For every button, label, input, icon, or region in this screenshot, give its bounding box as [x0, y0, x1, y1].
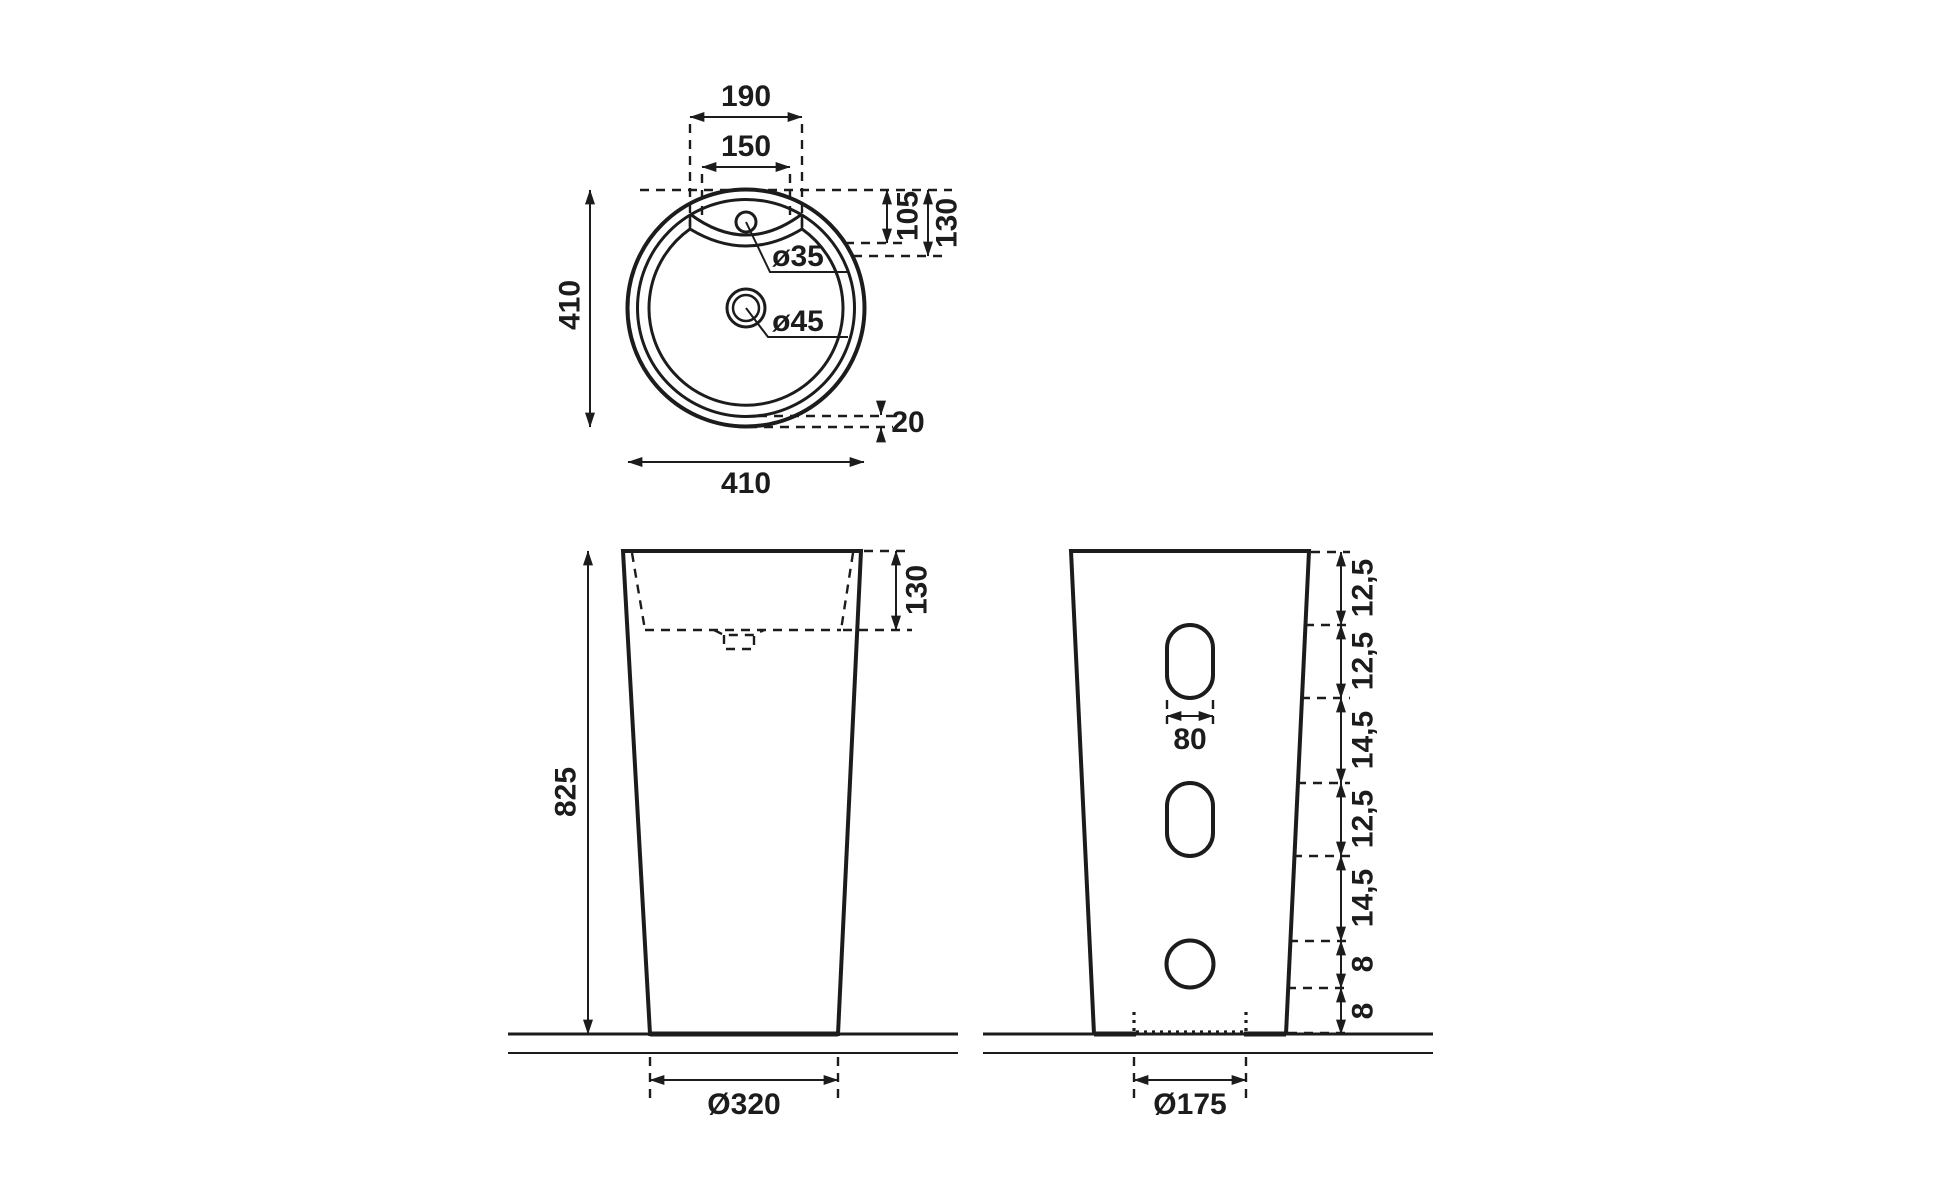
side-view: 80 12,5 12,5 14,5 12,5 14,5 8 8 Ø175	[983, 551, 1433, 1121]
pedestal-front-outline	[623, 551, 861, 1034]
segment-dim-label: 12,5	[1347, 632, 1380, 690]
segment-dim-label: 12,5	[1347, 559, 1380, 617]
front-view: 130 825 Ø320	[508, 551, 958, 1121]
segment-dim-label: 8	[1347, 956, 1380, 973]
base-recess-diameter-dim-label: Ø175	[1153, 1088, 1226, 1121]
drawing-canvas: ø35 ø45 190 150 410 105 130 20 410	[0, 0, 1934, 1200]
faucet-hole-dim-label: ø35	[772, 240, 824, 273]
basin-depth-dim-label: 130	[901, 565, 934, 615]
oval-opening-upper	[1167, 625, 1213, 698]
deck-width-inner-dim-label: 150	[721, 130, 771, 163]
drain-hidden-outline	[714, 630, 764, 649]
deck-depth-inner-dim-label: 105	[892, 191, 925, 241]
overall-height-dim-label: 825	[550, 767, 583, 817]
segment-dim-label: 14,5	[1347, 711, 1380, 769]
top-view: ø35 ø45 190 150 410 105 130 20 410	[554, 80, 964, 500]
technical-drawing: ø35 ø45 190 150 410 105 130 20 410	[0, 0, 1934, 1200]
rim-width-dim-label: 20	[891, 406, 924, 439]
segment-dim-label: 14,5	[1347, 869, 1380, 927]
overall-depth-dim-label: 410	[554, 280, 587, 330]
deck-depth-outer-dim-label: 130	[931, 198, 964, 248]
base-diameter-dim-label: Ø320	[707, 1088, 780, 1121]
deck-width-outer-dim-label: 190	[721, 80, 771, 113]
basin-hidden-wall-left	[632, 553, 645, 630]
hole-width-dim-label: 80	[1173, 723, 1206, 756]
drain-hole-dim-label: ø45	[772, 305, 824, 338]
segment-dim-label: 8	[1347, 1003, 1380, 1020]
basin-hidden-wall-right	[841, 553, 853, 630]
round-opening-lower	[1167, 941, 1214, 988]
oval-opening-middle	[1167, 783, 1213, 856]
overall-width-dim-label: 410	[721, 467, 771, 500]
segment-dim-label: 12,5	[1347, 790, 1380, 848]
